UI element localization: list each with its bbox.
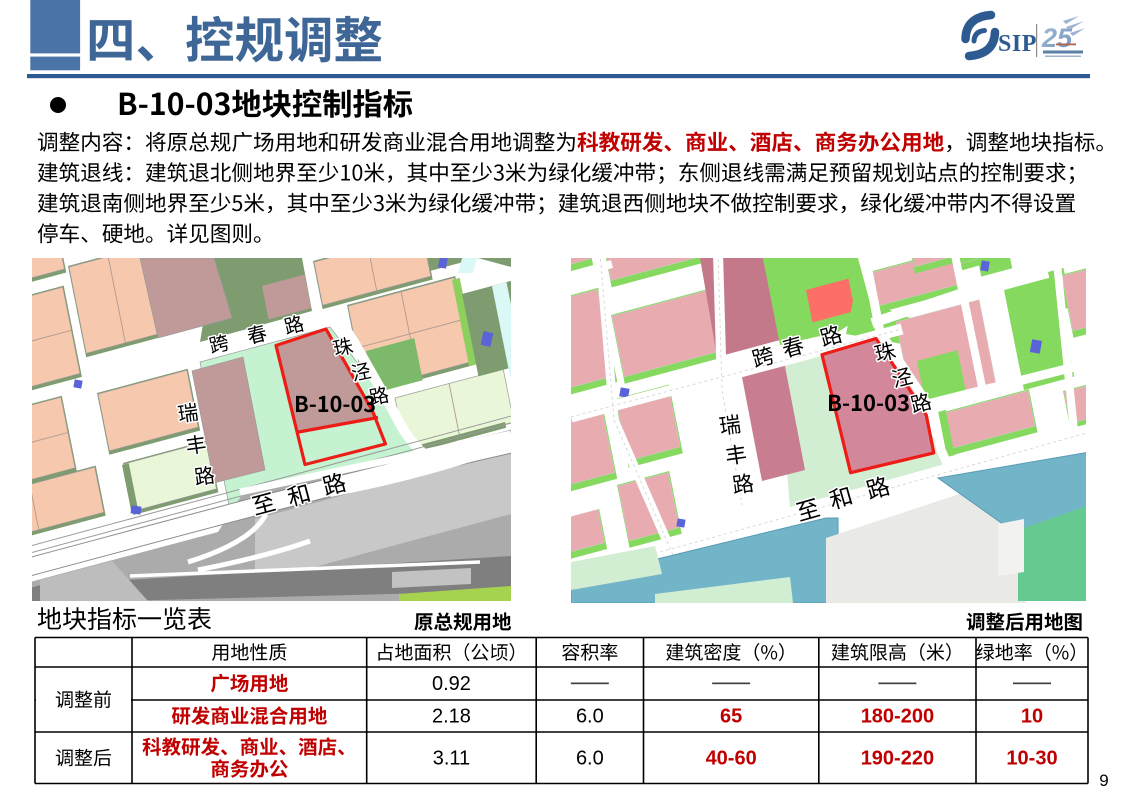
svg-text:3.11: 3.11 <box>433 747 470 769</box>
svg-text:10-30: 10-30 <box>1006 747 1057 769</box>
svg-text:0.92: 0.92 <box>432 673 471 695</box>
svg-text:9: 9 <box>1099 771 1108 790</box>
svg-text:6.0: 6.0 <box>576 747 604 769</box>
svg-text:10: 10 <box>1021 706 1043 728</box>
svg-text:40-60: 40-60 <box>706 747 757 769</box>
svg-text:6.0: 6.0 <box>576 706 604 728</box>
svg-text:65: 65 <box>720 706 742 728</box>
svg-text:190-220: 190-220 <box>861 747 934 769</box>
svg-text:SIP: SIP <box>998 31 1037 57</box>
svg-text:2.18: 2.18 <box>432 706 471 728</box>
svg-text:180-200: 180-200 <box>861 706 934 728</box>
